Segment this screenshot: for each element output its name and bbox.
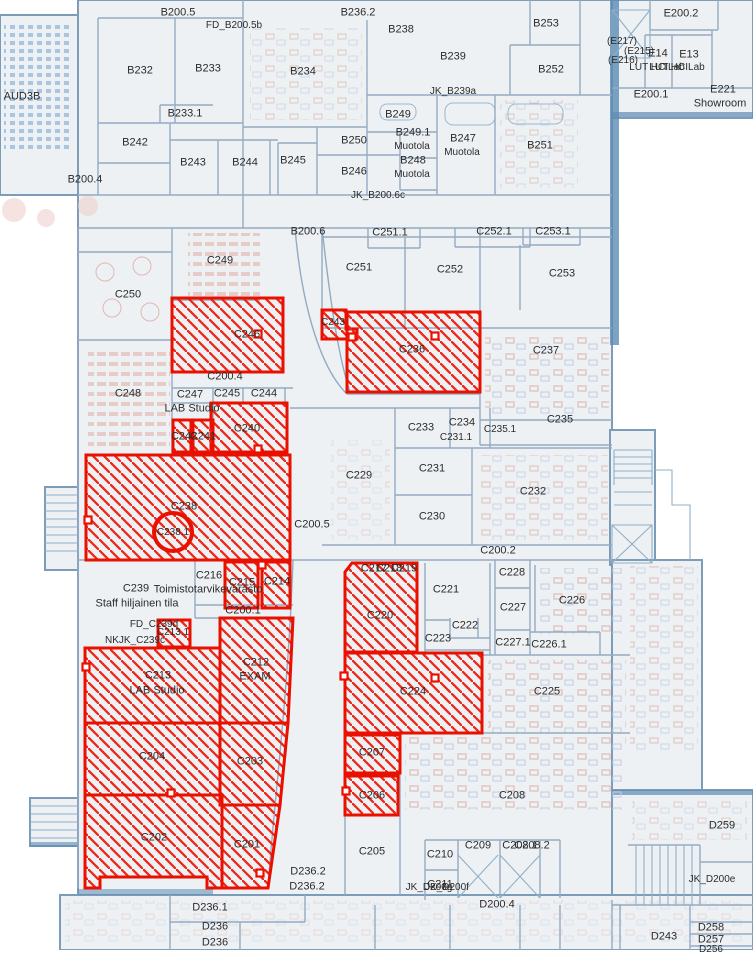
room-c241[interactable]: [193, 420, 213, 452]
door-marker: [343, 788, 350, 795]
door-marker: [255, 446, 262, 453]
room-c207[interactable]: [345, 735, 400, 773]
door-marker: [85, 517, 92, 524]
door-marker: [255, 331, 262, 338]
room-c204[interactable]: [85, 723, 220, 795]
door-marker: [83, 664, 90, 671]
room-c202[interactable]: [85, 795, 222, 888]
door-marker: [349, 334, 356, 341]
room-c215[interactable]: [225, 562, 258, 608]
room-c212[interactable]: [220, 618, 293, 723]
door-marker: [432, 675, 439, 682]
room-c246[interactable]: [172, 298, 283, 372]
door-marker: [259, 562, 266, 569]
door-marker: [257, 870, 264, 877]
door-marker: [341, 673, 348, 680]
door-marker: [168, 790, 175, 797]
room-c236[interactable]: [347, 312, 480, 392]
room-c203[interactable]: [220, 723, 288, 805]
door-marker: [432, 333, 439, 340]
room-c242[interactable]: [173, 420, 191, 452]
floor-plan: B200.5FD_B200.5bB236.2E200.2B232B233B234…: [0, 0, 753, 950]
room-c220[interactable]: [345, 563, 417, 652]
room-c224[interactable]: [345, 653, 482, 733]
floor-plan-svg: [0, 0, 753, 950]
room-c213.1[interactable]: [158, 620, 190, 647]
room-c213[interactable]: [85, 648, 220, 723]
room-c240[interactable]: [211, 403, 287, 452]
room-c206[interactable]: [345, 776, 398, 815]
room-c201[interactable]: [222, 805, 280, 888]
